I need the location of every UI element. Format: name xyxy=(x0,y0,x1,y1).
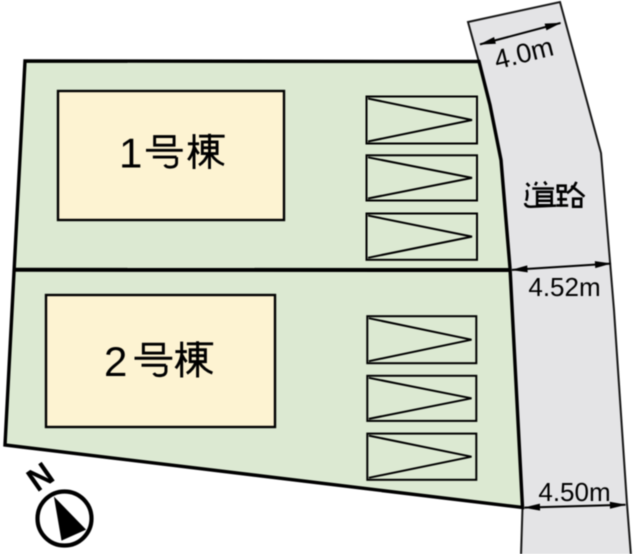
svg-text:4.52m: 4.52m xyxy=(528,272,600,302)
svg-text:4.50m: 4.50m xyxy=(538,477,610,507)
svg-text:1: 1 xyxy=(119,130,142,177)
svg-text:2: 2 xyxy=(104,338,127,385)
